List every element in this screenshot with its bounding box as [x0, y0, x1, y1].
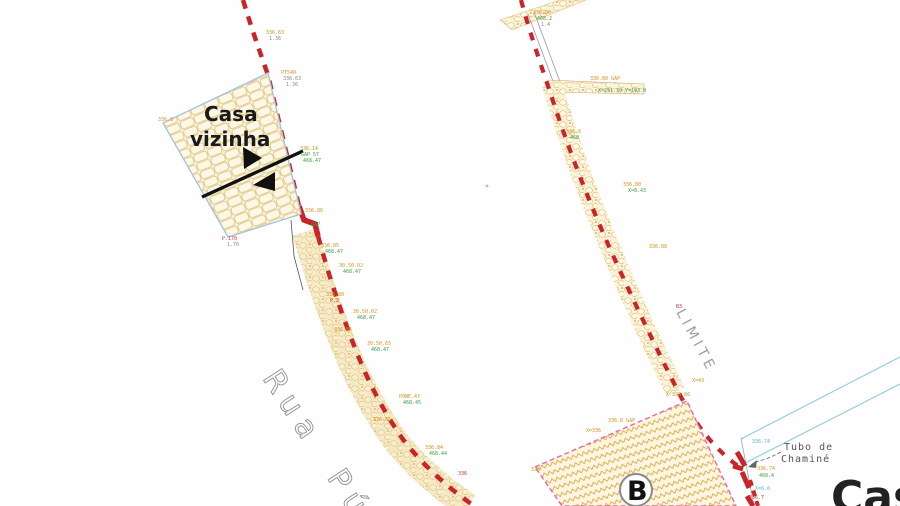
survey-point-label: 468	[570, 135, 579, 141]
scan-artifact-dot	[486, 185, 489, 188]
cyan-line-1	[741, 357, 900, 439]
right-boundary-dashed	[521, 0, 738, 466]
survey-point-label: 468.47	[325, 249, 343, 255]
neighbor-house-parcel: Casa vizinha	[163, 73, 303, 237]
survey-point-label: 1.4	[541, 22, 550, 28]
survey-point-label: 468.47	[357, 315, 375, 321]
survey-point-label: X 336.86	[666, 392, 690, 398]
survey-point-label: 336.80 GAP	[590, 76, 620, 82]
survey-point-label: 336.8	[158, 117, 173, 123]
survey-point-label: X=43	[692, 378, 704, 384]
limit-label-text: LIMITE	[672, 306, 719, 375]
survey-point-label: 468.45	[403, 400, 421, 406]
bottom-right-title: Casa	[831, 472, 900, 506]
survey-point-label: 336.85	[334, 327, 352, 333]
survey-point-label: P.2	[330, 298, 339, 304]
survey-point-label: 468.47	[343, 269, 361, 275]
neighbor-house-outline	[163, 73, 301, 237]
site-plan-canvas: Casa vizinha Rua Púb LIMITE B Tub	[0, 0, 900, 506]
neighbor-house-label-line1: Casa	[204, 102, 258, 126]
survey-point-label: X=6.6	[755, 486, 770, 492]
survey-point-label: 468.4	[759, 473, 774, 479]
survey-point-label: X=8.43	[628, 188, 646, 194]
survey-point-label: 468.44	[429, 451, 447, 457]
survey-point-label: 336	[531, 467, 540, 473]
scanned-survey-plan: Casa vizinha Rua Púb LIMITE B Tub	[0, 0, 900, 506]
survey-point-label: GAP	[311, 222, 320, 228]
survey-point-label: B3	[676, 304, 682, 310]
limit-label: LIMITE	[672, 306, 719, 375]
survey-point-label: X=336	[586, 428, 601, 434]
survey-point-label: 336.88	[649, 244, 667, 250]
chimney-note-line2: Chaminé	[781, 453, 830, 465]
zone-b-badge-letter: B	[627, 476, 648, 506]
survey-point-label: 1.70	[227, 242, 239, 248]
right-boundary-wall: LIMITE	[500, 0, 738, 466]
survey-point-label: 1.36	[269, 36, 281, 42]
survey-point-label: X=251.30 Y=193.8	[598, 88, 646, 94]
survey-point-label: 336.86	[305, 208, 323, 214]
chimney-note-line1: Tubo de	[784, 442, 833, 453]
survey-point-label: 468.47	[303, 158, 321, 164]
survey-point-label: 336	[458, 471, 467, 477]
survey-point-label: 468.47	[371, 347, 389, 353]
survey-point-label: 1.36	[286, 82, 298, 88]
survey-point-label: 336.85	[373, 417, 391, 423]
neighbor-house-label-line2: vizinha	[190, 127, 270, 151]
parcel-b: B	[535, 401, 736, 506]
left-boundary-wall	[243, 0, 489, 506]
survey-point-label: 336.8 GAP	[608, 418, 635, 424]
survey-point-label: 336.74	[752, 439, 770, 445]
survey-point-label: 336.7	[749, 495, 764, 501]
survey-point-label: 336.74	[757, 466, 775, 472]
